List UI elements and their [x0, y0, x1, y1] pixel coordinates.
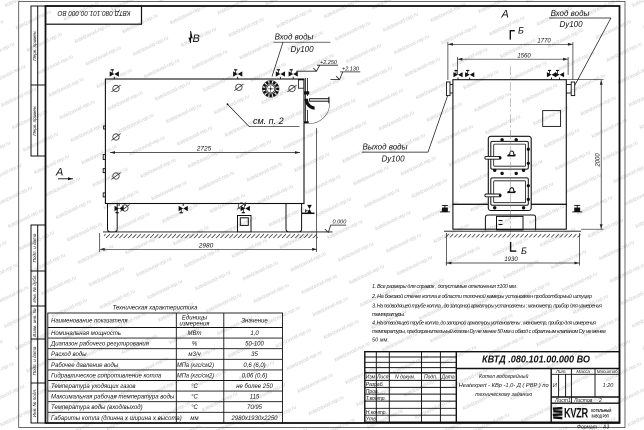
svg-text:0,6 (6,0): 0,6 (6,0)	[243, 363, 265, 369]
svg-text:измерения: измерения	[179, 322, 210, 328]
svg-text:КВТД.080.101.00.000 ВО: КВТД.080.101.00.000 ВО	[57, 9, 131, 16]
svg-text:Вход воды: Вход воды	[551, 9, 590, 18]
svg-text:2725: 2725	[196, 146, 212, 153]
svg-text:Наименование показателя: Наименование показателя	[51, 319, 128, 325]
svg-text:Утв.: Утв.	[366, 417, 377, 423]
svg-text:1560: 1560	[517, 54, 531, 60]
svg-text:А: А	[501, 9, 509, 21]
svg-text:МВт: МВт	[188, 331, 202, 337]
svg-text:°С: °С	[191, 384, 198, 390]
svg-text:А3: А3	[602, 424, 609, 430]
svg-text:Т.контр.: Т.контр.	[366, 396, 386, 402]
svg-text:не более 250: не более 250	[236, 384, 273, 390]
svg-text:Гидравлическое сопротивление к: Гидравлическое сопротивление котла	[51, 373, 162, 379]
svg-text:2980: 2980	[198, 242, 214, 249]
svg-text:35: 35	[251, 352, 258, 358]
svg-text:Пров.: Пров.	[366, 389, 379, 395]
svg-text:Масштаб: Масштаб	[597, 369, 618, 374]
svg-text:0,06 (0,6): 0,06 (0,6)	[242, 373, 268, 379]
svg-text:Лист: Лист	[376, 375, 390, 381]
svg-text:Подп.: Подп.	[424, 375, 437, 381]
svg-text:Температура воды (вход/выход): Температура воды (вход/выход)	[51, 405, 143, 411]
svg-text:Значение: Значение	[241, 319, 268, 325]
svg-text:Лит.: Лит.	[555, 369, 567, 374]
svg-text:Вход воды: Вход воды	[275, 33, 314, 42]
svg-text:1: 1	[568, 398, 571, 404]
svg-text:Dy100: Dy100	[381, 155, 405, 164]
svg-text:Формат: Формат	[577, 424, 597, 430]
svg-text:Диапазон рабочего регулировани: Диапазон рабочего регулирования	[50, 342, 150, 348]
svg-text:Максимальная рабочая температу: Максимальная рабочая температура воды	[51, 395, 175, 401]
svg-text:Инв. № дубл.: Инв. № дубл.	[32, 274, 37, 302]
svg-text:Б: Б	[518, 26, 524, 36]
svg-text:Расход воды: Расход воды	[51, 352, 87, 358]
svg-text:2000: 2000	[596, 153, 602, 168]
svg-text:Dy100: Dy100	[290, 45, 314, 54]
svg-text:м3/ч: м3/ч	[188, 352, 200, 358]
svg-text:1,0: 1,0	[250, 331, 259, 337]
svg-text:Техническая характеристика: Техническая характеристика	[113, 306, 199, 312]
svg-text:техническому заданию: техническому заданию	[475, 392, 532, 398]
svg-text:0.000: 0.000	[333, 220, 348, 226]
svg-text:2: 2	[598, 398, 602, 404]
svg-text:°С: °С	[191, 395, 198, 401]
svg-text:N докум.: N докум.	[395, 375, 415, 381]
svg-text:°С: °С	[191, 405, 198, 411]
svg-text:Масса: Масса	[576, 369, 590, 374]
svg-text:Подп. и дата: Подп. и дата	[32, 346, 37, 375]
svg-text:Котел водогрейный: Котел водогрейный	[479, 373, 528, 380]
svg-text:КВТД .080.101.00.000 ВО: КВТД .080.101.00.000 ВО	[482, 355, 590, 366]
svg-text:2. На боковой стенке котла в: 2. На боковой стенке котла в области топ…	[371, 293, 592, 300]
svg-text:115: 115	[250, 395, 260, 401]
svg-text:Дата: Дата	[441, 375, 455, 381]
svg-text:см. п. 2: см. п. 2	[253, 116, 284, 126]
svg-text:КОТЕЛЬНЫЙ: КОТЕЛЬНЫЙ	[591, 408, 611, 413]
svg-text:4. На отводящей трубе котла ,: 4. На отводящей трубе котла ,до запорной…	[372, 320, 596, 327]
svg-text:Н.контр.: Н.контр.	[366, 410, 387, 416]
svg-text:Разраб.: Разраб.	[366, 382, 384, 388]
svg-text:3. На подводящей трубе котла: 3. На подводящей трубе котла , до запорн…	[372, 303, 602, 310]
svg-text:температуры, предохранительный: температуры, предохранительный клапан Dу…	[372, 328, 606, 335]
svg-text:Номинальная мощность: Номинальная мощность	[51, 331, 121, 337]
svg-text:Б: Б	[521, 246, 527, 256]
svg-text:Листов: Листов	[573, 398, 593, 404]
svg-text:1:20: 1:20	[603, 383, 615, 389]
svg-text:Перв. примен.: Перв. примен.	[32, 105, 37, 136]
svg-text:KVZR: KVZR	[564, 406, 589, 421]
svg-text:Heatexpert - КВр -1,0- Д ( РВР: Heatexpert - КВр -1,0- Д ( РВР ) по	[459, 383, 549, 389]
svg-text:70/95: 70/95	[247, 405, 263, 411]
svg-text:Рабочее давление воды: Рабочее давление воды	[51, 363, 119, 369]
svg-text:1930: 1930	[504, 257, 518, 263]
svg-text:И: И	[553, 383, 557, 389]
svg-text:Лист: Лист	[554, 398, 568, 404]
svg-text:50-100: 50-100	[245, 342, 264, 348]
svg-text:мм: мм	[190, 416, 198, 422]
svg-text:Выход воды: Выход воды	[363, 143, 408, 152]
svg-text:%: %	[192, 342, 198, 348]
svg-text:Изм: Изм	[366, 375, 376, 381]
svg-text:Инв. № подл.: Инв. № подл.	[32, 389, 37, 418]
svg-text:Dy100: Dy100	[559, 20, 583, 29]
svg-text:50 мм.: 50 мм.	[372, 338, 389, 344]
svg-text:В: В	[193, 33, 200, 45]
svg-text:Перв. примен.: Перв. примен.	[32, 30, 37, 61]
svg-text:Температура уходящих газов: Температура уходящих газов	[51, 384, 136, 390]
svg-text:МПа (кгс/см2): МПа (кгс/см2)	[177, 373, 214, 379]
svg-text:1. Все размеры для справок ,: 1. Все размеры для справок , допустимые …	[372, 284, 517, 290]
svg-text:Подп. и дата: Подп. и дата	[32, 233, 37, 262]
svg-text:Габариты котла (длинна х ширин: Габариты котла (длинна х ширина х высота…	[51, 416, 182, 422]
svg-text:температуры.: температуры.	[372, 312, 405, 318]
svg-text:1770: 1770	[537, 39, 551, 45]
svg-text:Взам. инв. №: Взам. инв. №	[32, 308, 37, 336]
svg-text:2980х1930х2250: 2980х1930х2250	[230, 416, 278, 422]
svg-text:МПа (кгс/см2): МПа (кгс/см2)	[177, 363, 214, 369]
svg-text:А: А	[55, 167, 63, 179]
svg-text:ЗАВОД РЭП: ЗАВОД РЭП	[591, 414, 609, 419]
